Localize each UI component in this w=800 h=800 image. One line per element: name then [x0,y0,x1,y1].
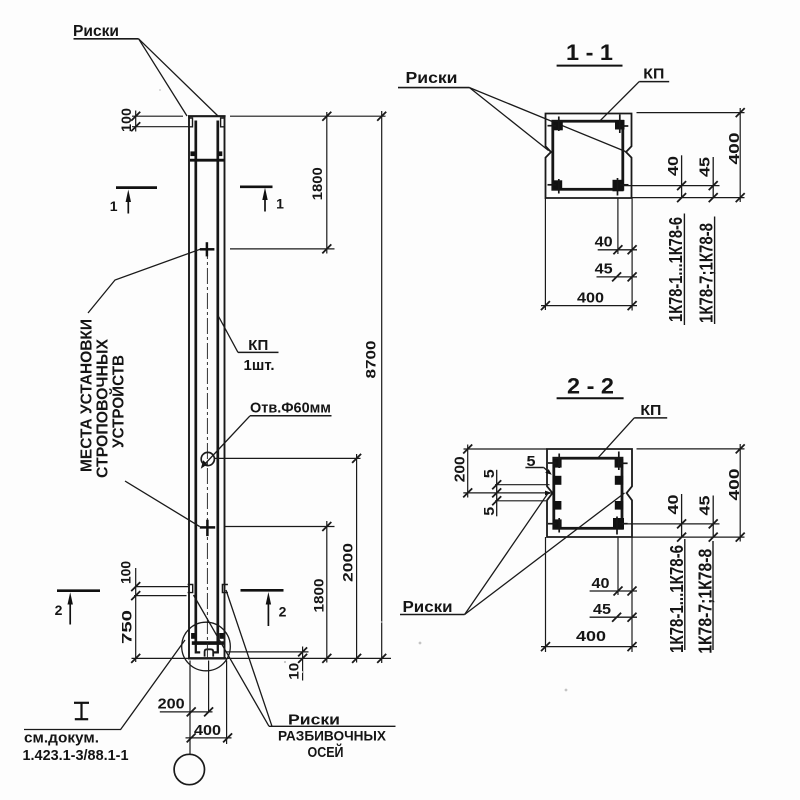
svg-text:40: 40 [592,576,610,592]
svg-text:5: 5 [482,469,498,478]
svg-text:400: 400 [727,133,743,165]
svg-text:1: 1 [110,198,118,214]
svg-text:400: 400 [194,722,221,739]
svg-text:КП: КП [640,402,661,419]
svg-text:45: 45 [698,157,714,177]
svg-text:750: 750 [118,610,134,644]
svg-text:100: 100 [118,108,134,132]
svg-text:Риски: Риски [403,599,453,616]
svg-text:200: 200 [158,696,185,713]
svg-text:2 - 2: 2 - 2 [567,374,614,399]
svg-text:1шт.: 1шт. [244,357,275,374]
svg-text:45: 45 [593,602,611,618]
svg-text:ОСЕЙ: ОСЕЙ [308,743,344,761]
svg-text:400: 400 [576,629,606,645]
svg-text:СТРОПОВОЧНЫХ: СТРОПОВОЧНЫХ [95,339,112,478]
svg-text:40: 40 [666,156,682,176]
svg-text:Риски: Риски [406,70,458,87]
svg-text:Риски: Риски [73,23,119,40]
svg-text:1.423.1-3/88.1-1: 1.423.1-3/88.1-1 [23,747,129,764]
svg-text:10: 10 [285,662,301,679]
svg-text:1800: 1800 [309,167,325,200]
svg-text:Отв.Ф60мм: Отв.Ф60мм [250,400,331,417]
svg-text:8700: 8700 [362,340,378,378]
svg-text:100: 100 [118,561,134,584]
svg-text:Риски: Риски [288,711,340,728]
svg-text:2: 2 [55,602,63,618]
svg-text:УСТРОЙСТВ: УСТРОЙСТВ [109,355,128,448]
svg-text:1 - 1: 1 - 1 [566,40,613,65]
svg-text:5: 5 [482,507,498,516]
svg-text:2000: 2000 [339,543,355,582]
svg-text:400: 400 [727,469,743,501]
svg-text:45: 45 [698,496,714,516]
svg-text:1К78-1...1К78-6: 1К78-1...1К78-6 [666,217,686,322]
svg-text:1800: 1800 [310,578,326,612]
svg-text:45: 45 [595,262,613,278]
svg-text:40: 40 [595,235,613,251]
svg-text:КП: КП [643,65,664,82]
svg-text:1К78-7;1К78-8: 1К78-7;1К78-8 [697,223,717,323]
svg-text:см.докум.: см.докум. [24,731,99,747]
svg-text:400: 400 [577,290,604,306]
svg-text:1: 1 [276,196,284,212]
svg-text:КП: КП [248,337,268,354]
svg-text:РАЗБИВОЧНЫХ: РАЗБИВОЧНЫХ [278,728,387,744]
svg-text:200: 200 [452,456,468,482]
svg-text:40: 40 [666,495,682,515]
svg-text:2: 2 [279,604,287,620]
svg-text:МЕСТА УСТАНОВКИ: МЕСТА УСТАНОВКИ [79,319,96,472]
